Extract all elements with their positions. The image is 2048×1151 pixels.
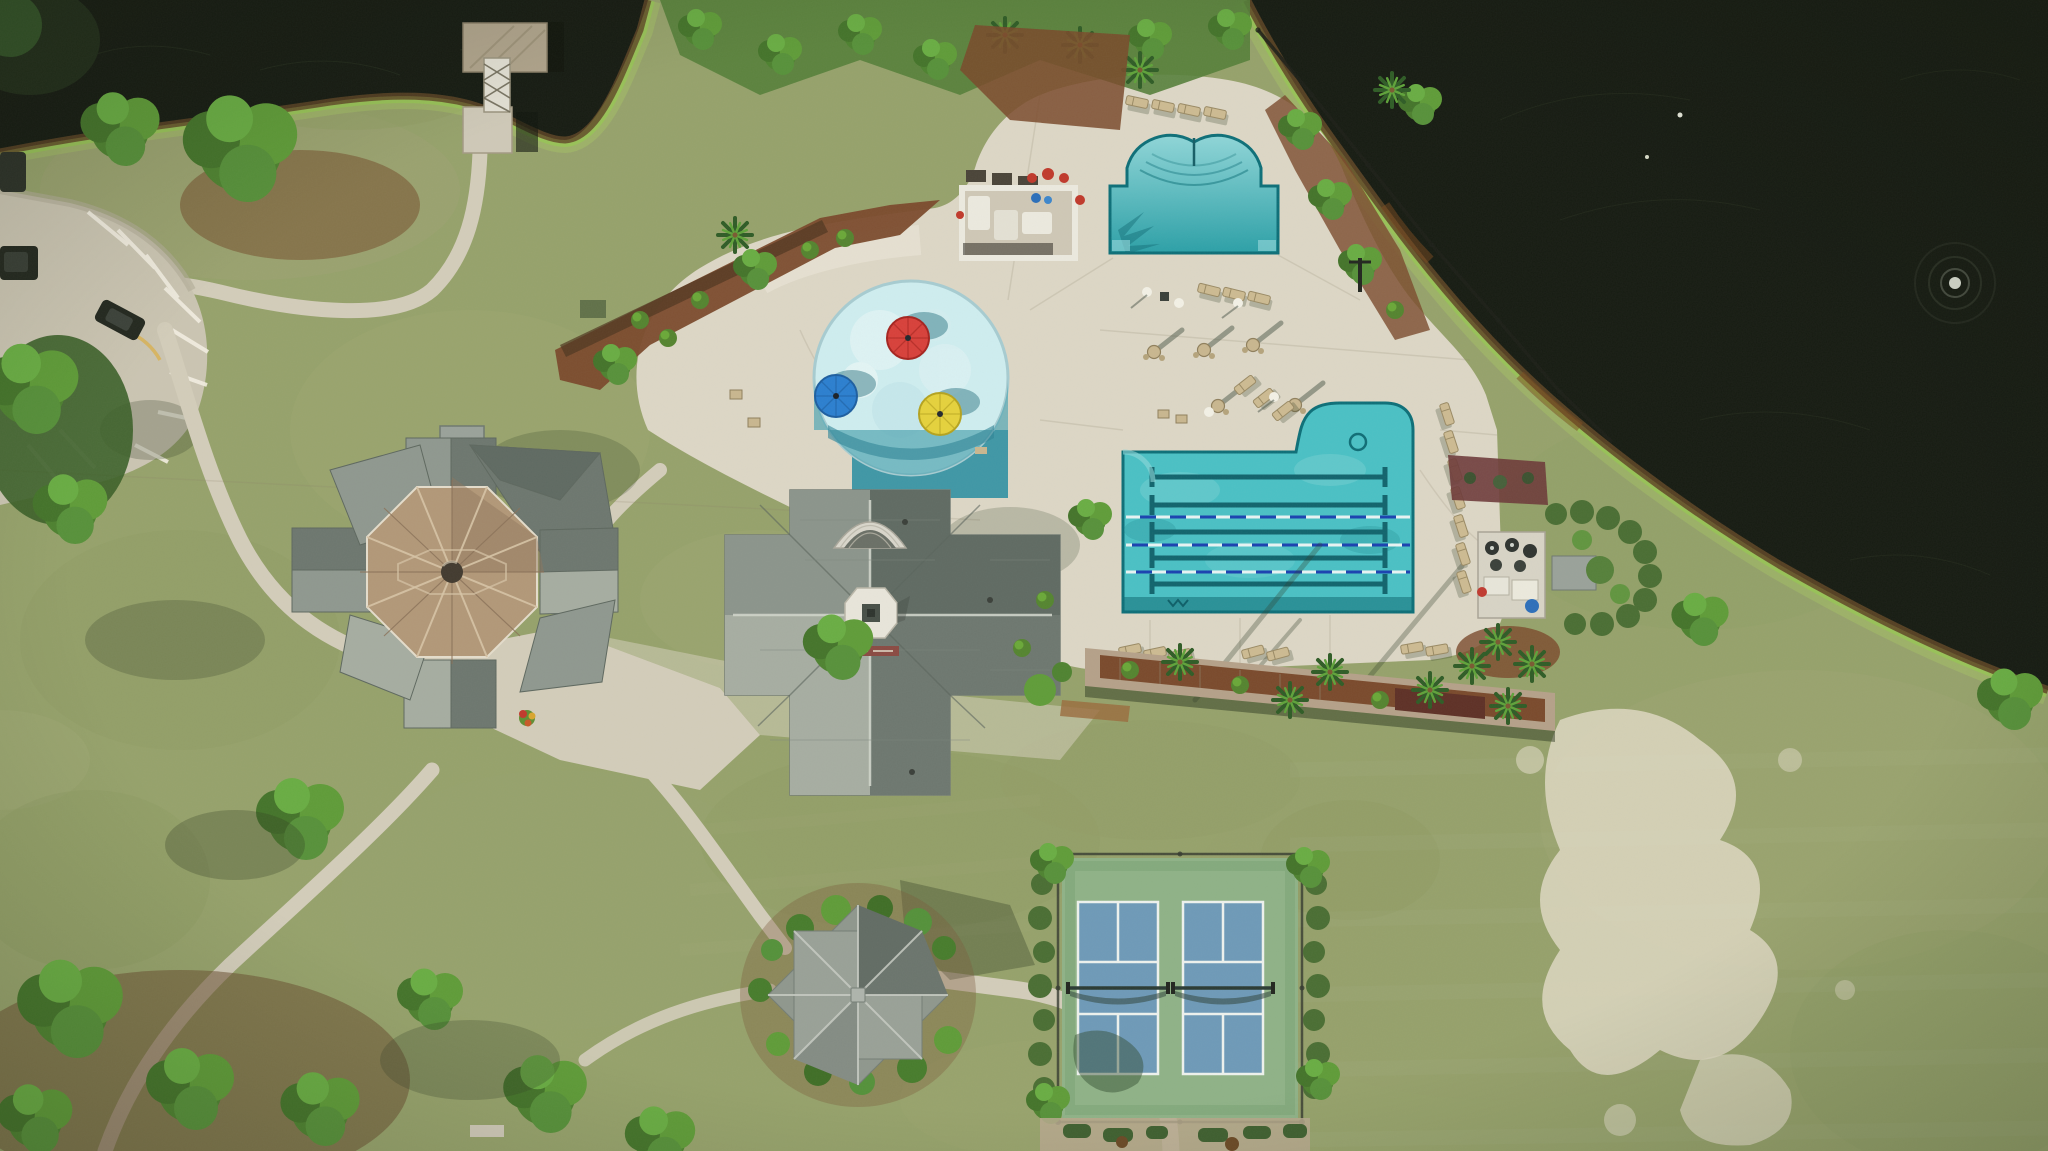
aerial-photo bbox=[0, 0, 2048, 1151]
vignette bbox=[0, 0, 2048, 1151]
aerial-photo-canvas bbox=[0, 0, 2048, 1151]
